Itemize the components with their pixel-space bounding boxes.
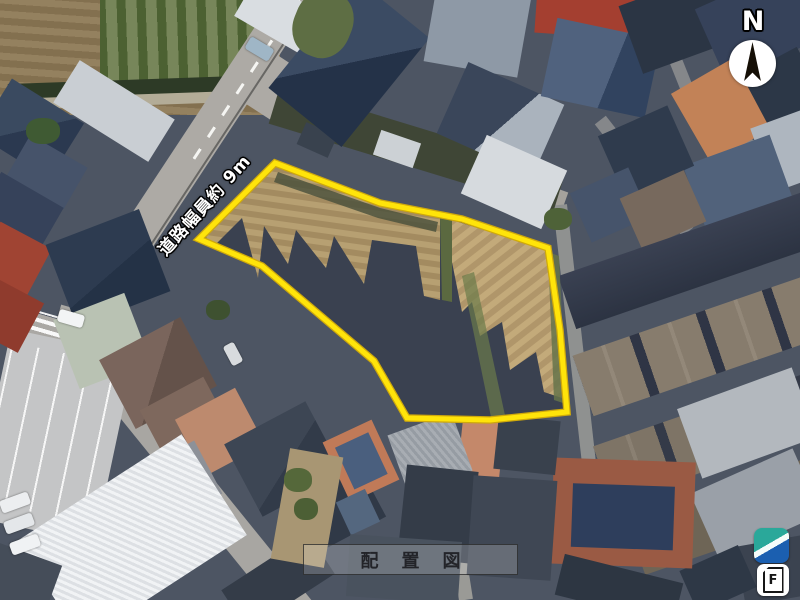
site-grass-divider: [440, 216, 452, 302]
site-bank-shade: [274, 172, 438, 232]
veg-shape: [284, 468, 312, 492]
building-roof: [550, 458, 696, 569]
compass-n-label: N: [718, 8, 788, 35]
veg-shape: [234, 238, 262, 262]
veg-shape: [26, 118, 60, 144]
plan-title-box: 配置図: [303, 544, 518, 575]
s-curve-logo-icon[interactable]: [754, 528, 789, 563]
veg-shape: [294, 498, 318, 520]
site-field-right: [452, 220, 562, 398]
car-shape: [223, 341, 244, 366]
veg-shape: [544, 208, 572, 230]
veg-shape: [206, 300, 230, 320]
document-f-letter: F: [763, 567, 784, 593]
north-compass: N: [718, 8, 788, 100]
site-field-left: [206, 166, 440, 300]
plan-title: 配置図: [338, 547, 484, 573]
north-arrow-icon: [738, 42, 767, 84]
document-f-icon[interactable]: F: [757, 564, 789, 596]
building-roof: [493, 415, 560, 475]
site-grass-band: [462, 272, 506, 422]
aerial-photo-view: 道路幅員約 9m N 配置図 F: [0, 0, 800, 600]
road-surface: [553, 204, 599, 491]
compass-circle: [729, 40, 776, 87]
